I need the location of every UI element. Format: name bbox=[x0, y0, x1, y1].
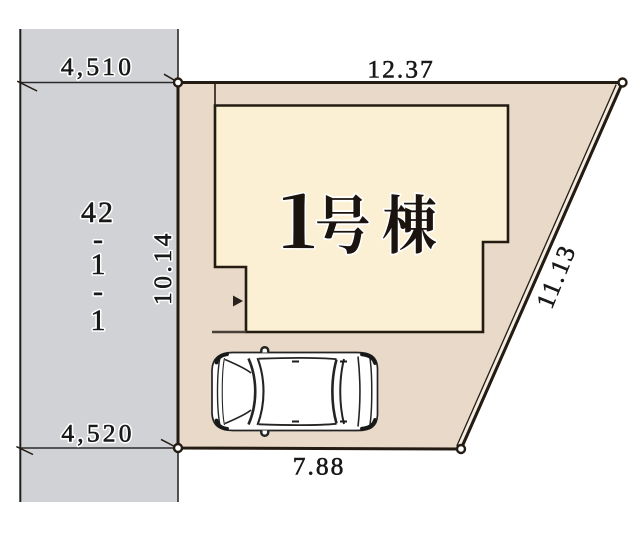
svg-text:10.14: 10.14 bbox=[148, 230, 177, 305]
svg-text:1: 1 bbox=[91, 304, 106, 337]
svg-text:12.37: 12.37 bbox=[367, 55, 434, 84]
svg-text:4,520: 4,520 bbox=[61, 419, 134, 448]
svg-text:4,510: 4,510 bbox=[61, 52, 134, 81]
svg-text:7.88: 7.88 bbox=[293, 452, 346, 481]
